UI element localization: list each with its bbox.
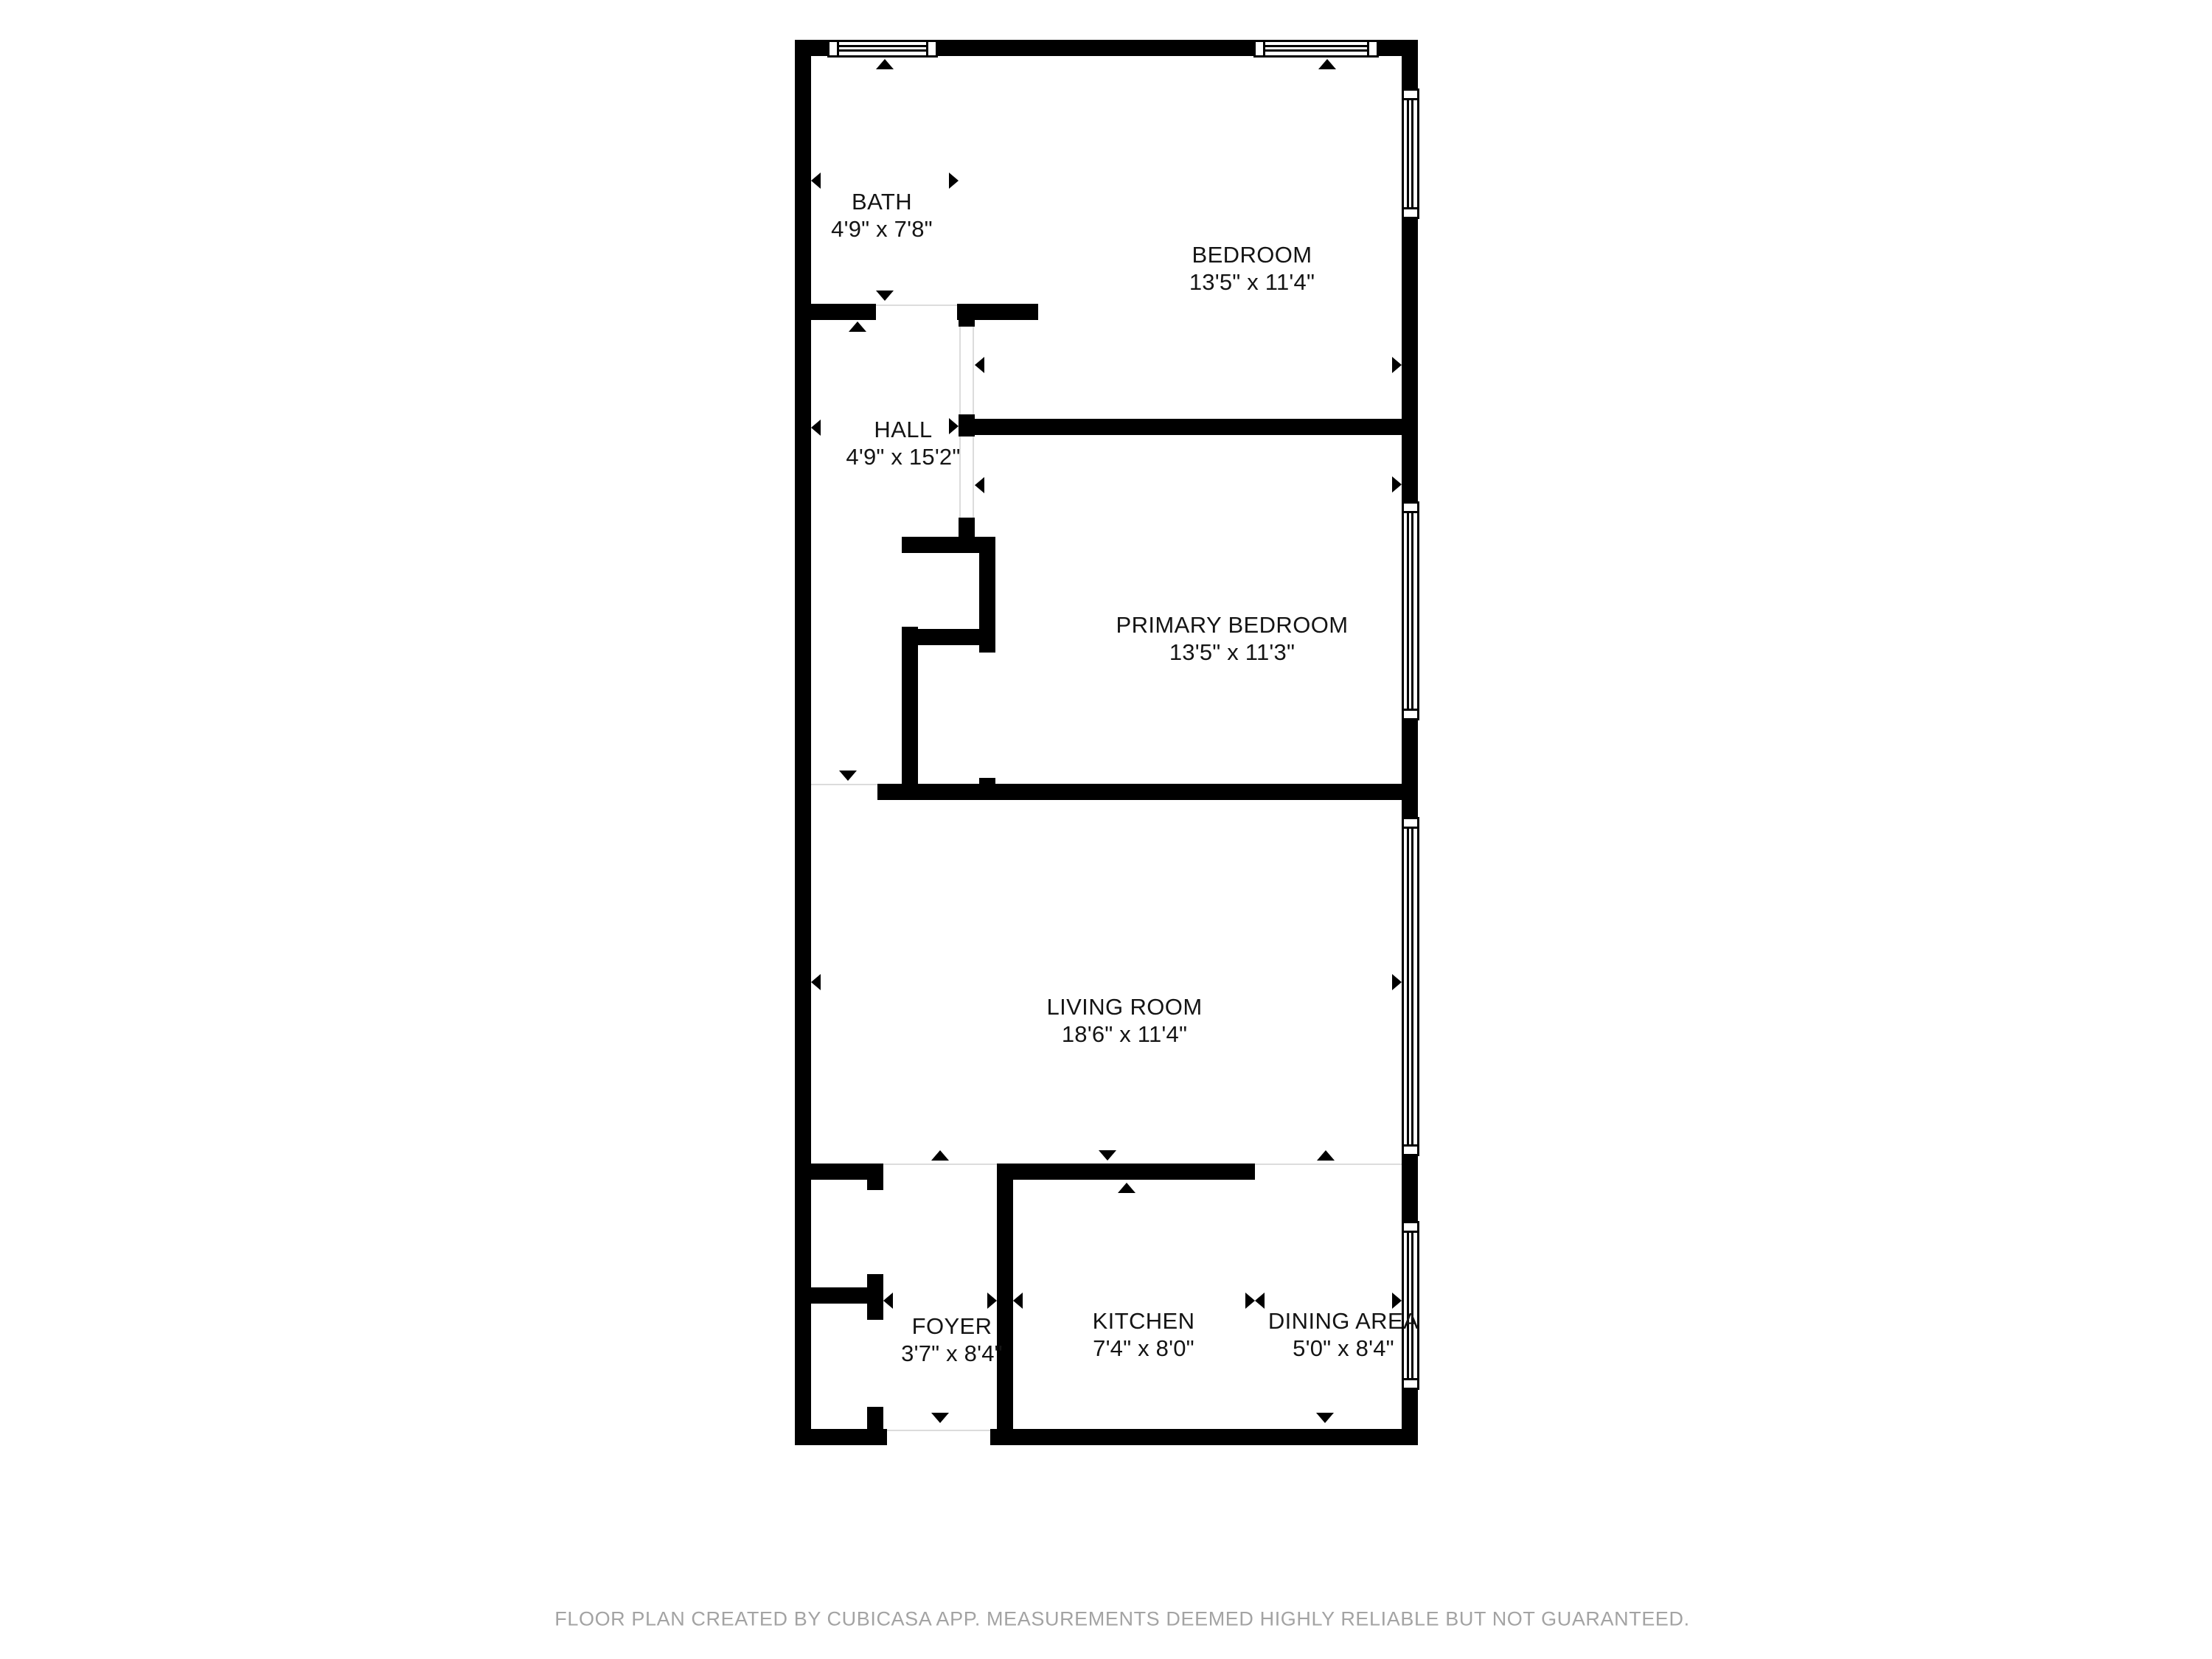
foyer-living-opening-icon — [931, 1150, 949, 1161]
bedroom-door-icon — [975, 357, 984, 373]
primary-right-window — [1402, 501, 1419, 720]
living-dim-right-icon — [1392, 974, 1402, 990]
bath-dim-right-icon — [949, 173, 959, 189]
foyer-dim-left-icon — [883, 1293, 893, 1309]
room-dims: 13'5" x 11'3" — [1116, 639, 1349, 666]
foyer-closet-mid-wall — [795, 1287, 883, 1304]
opening-dining-living — [1255, 1164, 1402, 1165]
closet-left-wall — [902, 627, 918, 800]
bath-bottom-wall — [811, 304, 876, 320]
bath-dim-left-icon — [811, 173, 821, 189]
room-name: DINING AREA — [1268, 1307, 1419, 1335]
foyer-kitchen-partition — [997, 1164, 1013, 1429]
opening-entry-door — [887, 1430, 990, 1431]
opening-bedroom-door-a — [959, 327, 961, 414]
room-name: FOYER — [901, 1312, 1003, 1340]
room-label-dining-area: DINING AREA 5'0" x 8'4" — [1268, 1307, 1419, 1362]
room-dims: 18'6" x 11'4" — [1046, 1020, 1202, 1048]
living-dim-left-icon — [811, 974, 821, 990]
dining-right-window — [1402, 1221, 1419, 1390]
dining-bottom-marker-icon — [1316, 1413, 1334, 1423]
room-dims: 7'4" x 8'0" — [1093, 1335, 1195, 1362]
entry-door-marker-icon — [931, 1413, 949, 1423]
outer-wall-bottom-right — [990, 1429, 1418, 1445]
room-name: LIVING ROOM — [1046, 993, 1202, 1020]
opening-hall-living — [811, 784, 877, 785]
room-dims: 3'7" x 8'4" — [901, 1340, 1003, 1367]
dining-dim-right-icon — [1392, 1293, 1402, 1309]
bedroom-right-window — [1402, 88, 1419, 219]
room-dims: 13'5" x 11'4" — [1189, 268, 1315, 296]
room-name: KITCHEN — [1093, 1307, 1195, 1335]
room-label-bath: BATH 4'9" x 7'8" — [831, 188, 933, 243]
bedroom-window-marker-icon — [1318, 59, 1336, 69]
hall-living-opening-icon — [839, 771, 857, 781]
closet-right-wall-upper — [979, 537, 995, 653]
room-label-hall: HALL 4'9" x 15'2" — [846, 416, 960, 470]
bath-window — [827, 40, 938, 58]
room-label-bedroom: BEDROOM 13'5" x 11'4" — [1189, 241, 1315, 296]
opening-bedroom-door-b — [973, 327, 974, 414]
hall-partition-mid — [959, 414, 975, 437]
kitchen-dim-left-icon — [1013, 1293, 1023, 1309]
dining-living-opening-icon — [1317, 1150, 1335, 1161]
room-label-living-room: LIVING ROOM 18'6" x 11'4" — [1046, 993, 1202, 1048]
foyer-closet-right-a — [867, 1180, 883, 1190]
bedroom-top-window — [1253, 40, 1379, 58]
living-right-window — [1402, 817, 1419, 1156]
hall-partition-upper — [959, 304, 975, 327]
room-dims: 4'9" x 7'8" — [831, 215, 933, 243]
hall-dim-left-icon — [811, 420, 821, 436]
primary-door-icon — [975, 477, 984, 493]
kitchen-wall-marker-top-icon — [1099, 1150, 1116, 1161]
footer-disclaimer: FLOOR PLAN CREATED BY CUBICASA APP. MEAS… — [554, 1608, 1689, 1631]
dining-dim-left-icon — [1255, 1293, 1265, 1309]
outer-wall-bottom-left — [795, 1429, 887, 1445]
foyer-top-stub-wall — [795, 1164, 883, 1180]
bath-door-marker-icon — [876, 291, 894, 301]
foyer-closet-right-c — [867, 1407, 883, 1429]
room-label-kitchen: KITCHEN 7'4" x 8'0" — [1093, 1307, 1195, 1362]
room-label-foyer: FOYER 3'7" x 8'4" — [901, 1312, 1003, 1367]
room-label-primary-bedroom: PRIMARY BEDROOM 13'5" x 11'3" — [1116, 611, 1349, 666]
hall-door-marker-icon — [849, 321, 866, 332]
room-name: HALL — [846, 416, 960, 443]
opening-foyer-living — [883, 1164, 997, 1165]
room-name: PRIMARY BEDROOM — [1116, 611, 1349, 639]
floor-plan: BATH 4'9" x 7'8" BEDROOM 13'5" x 11'4" H… — [0, 0, 2212, 1659]
foyer-dim-right-icon — [987, 1293, 997, 1309]
room-dims: 5'0" x 8'4" — [1268, 1335, 1419, 1362]
kitchen-dim-right-icon — [1245, 1293, 1255, 1309]
bedroom-divider-wall — [975, 419, 1402, 435]
kitchen-wall-marker-bottom-icon — [1118, 1183, 1135, 1193]
opening-bath-door — [876, 305, 957, 306]
primary-bottom-wall — [877, 784, 1402, 800]
bath-window-marker-icon — [876, 59, 894, 69]
opening-primary-door-b — [973, 437, 974, 518]
room-dims: 4'9" x 15'2" — [846, 443, 960, 470]
room-name: BEDROOM — [1189, 241, 1315, 268]
kitchen-top-wall — [997, 1164, 1255, 1180]
outer-wall-left — [795, 40, 811, 1445]
room-name: BATH — [831, 188, 933, 215]
bedroom-dim-right-icon — [1392, 357, 1402, 373]
primary-dim-right-icon — [1392, 476, 1402, 493]
